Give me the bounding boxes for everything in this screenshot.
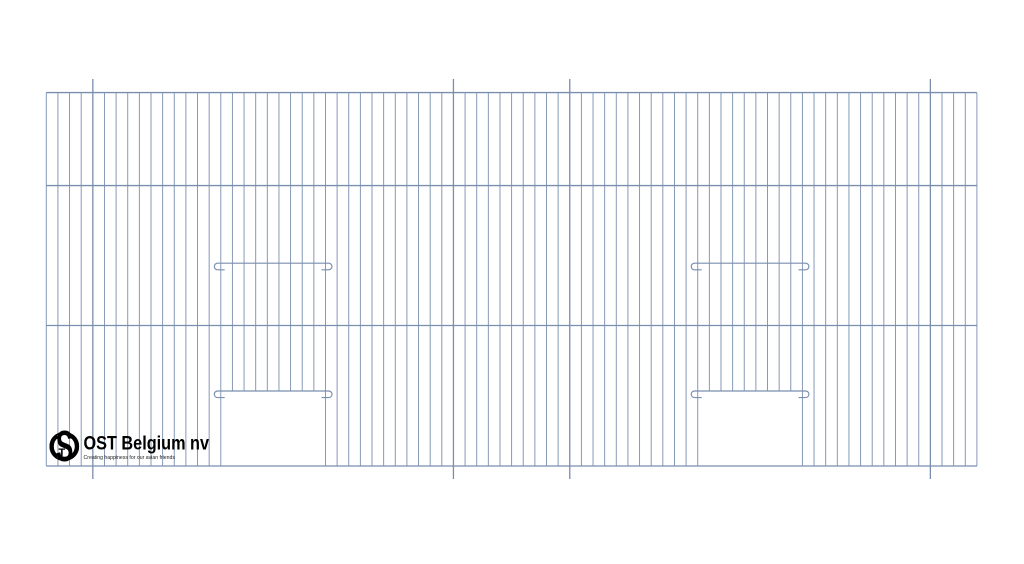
svg-text:OST Belgium nv: OST Belgium nv	[84, 432, 210, 454]
svg-text:S: S	[56, 421, 74, 471]
svg-text:Creating happiness for our avi: Creating happiness for our avian friends	[84, 455, 176, 461]
svg-text:T: T	[59, 447, 66, 459]
